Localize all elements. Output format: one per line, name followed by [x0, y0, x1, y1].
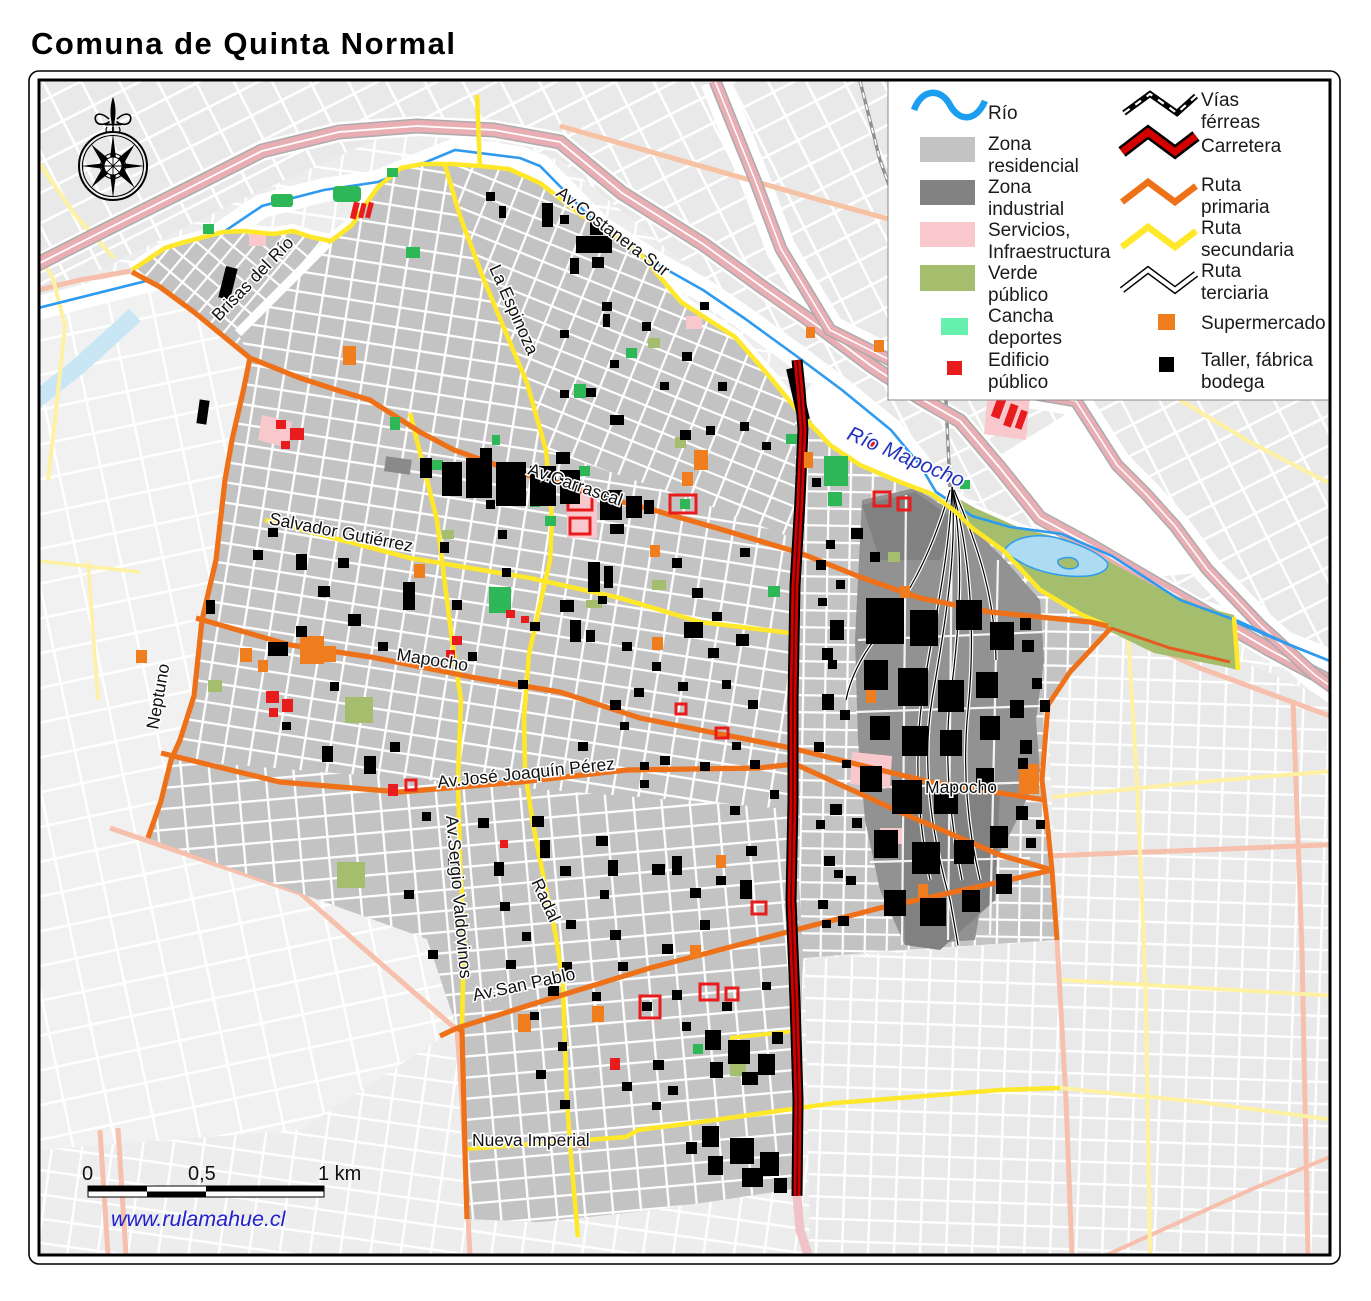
svg-text:Supermercado: Supermercado — [1201, 313, 1326, 334]
svg-text:Edificio: Edificio — [988, 350, 1049, 371]
svg-text:industrial: industrial — [988, 199, 1064, 220]
svg-text:terciaria: terciaria — [1201, 283, 1269, 304]
svg-text:secundaria: secundaria — [1201, 240, 1294, 261]
svg-text:público: público — [988, 372, 1048, 393]
svg-text:Comuna de Quinta Normal: Comuna de Quinta Normal — [31, 26, 456, 61]
svg-text:deportes: deportes — [988, 328, 1062, 349]
svg-text:Ruta: Ruta — [1201, 175, 1242, 196]
svg-text:público: público — [988, 285, 1048, 306]
svg-text:Verde: Verde — [988, 263, 1038, 284]
svg-text:Taller, fábrica: Taller, fábrica — [1201, 350, 1313, 371]
svg-text:0,5: 0,5 — [188, 1163, 216, 1185]
svg-text:Ruta: Ruta — [1201, 218, 1242, 239]
svg-text:férreas: férreas — [1201, 112, 1260, 133]
svg-text:Nueva Imperial: Nueva Imperial — [472, 1130, 590, 1150]
svg-text:primaria: primaria — [1201, 197, 1270, 218]
svg-text:Carretera: Carretera — [1201, 136, 1282, 157]
svg-text:Vías: Vías — [1201, 90, 1239, 111]
svg-text:Ruta: Ruta — [1201, 261, 1242, 282]
svg-text:residencial: residencial — [988, 156, 1079, 177]
svg-text:1 km: 1 km — [318, 1163, 361, 1185]
svg-text:Zona: Zona — [988, 134, 1032, 155]
svg-text:Mapocho: Mapocho — [925, 777, 997, 797]
svg-text:Servicios,: Servicios, — [988, 220, 1070, 241]
svg-text:www.rulamahue.cl: www.rulamahue.cl — [111, 1207, 287, 1231]
svg-text:Cancha: Cancha — [988, 306, 1054, 327]
svg-text:Río: Río — [988, 103, 1018, 124]
svg-text:Zona: Zona — [988, 177, 1032, 198]
svg-text:0: 0 — [82, 1163, 93, 1185]
svg-text:bodega: bodega — [1201, 372, 1265, 393]
svg-text:Infraestructura: Infraestructura — [988, 242, 1111, 263]
